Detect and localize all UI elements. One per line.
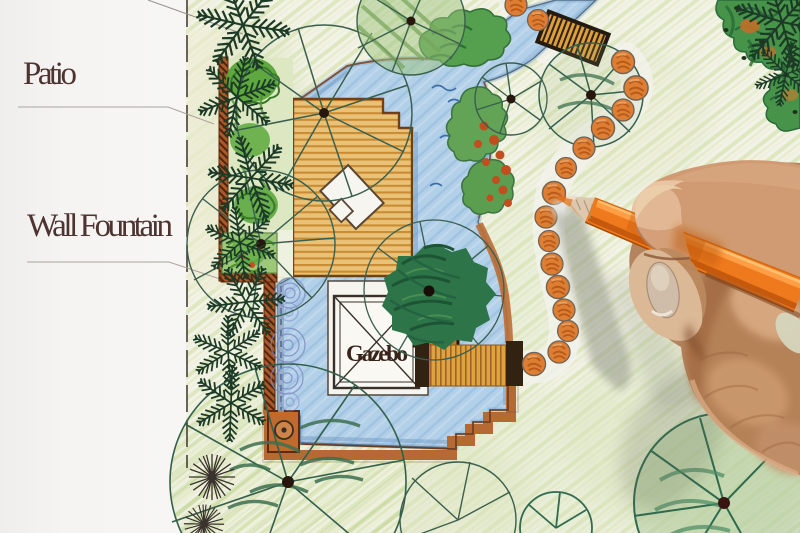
svg-text:Wall Fountain: Wall Fountain [27, 208, 173, 244]
svg-text:Gazebo: Gazebo [346, 341, 408, 366]
svg-text:Patio: Patio [23, 56, 77, 92]
